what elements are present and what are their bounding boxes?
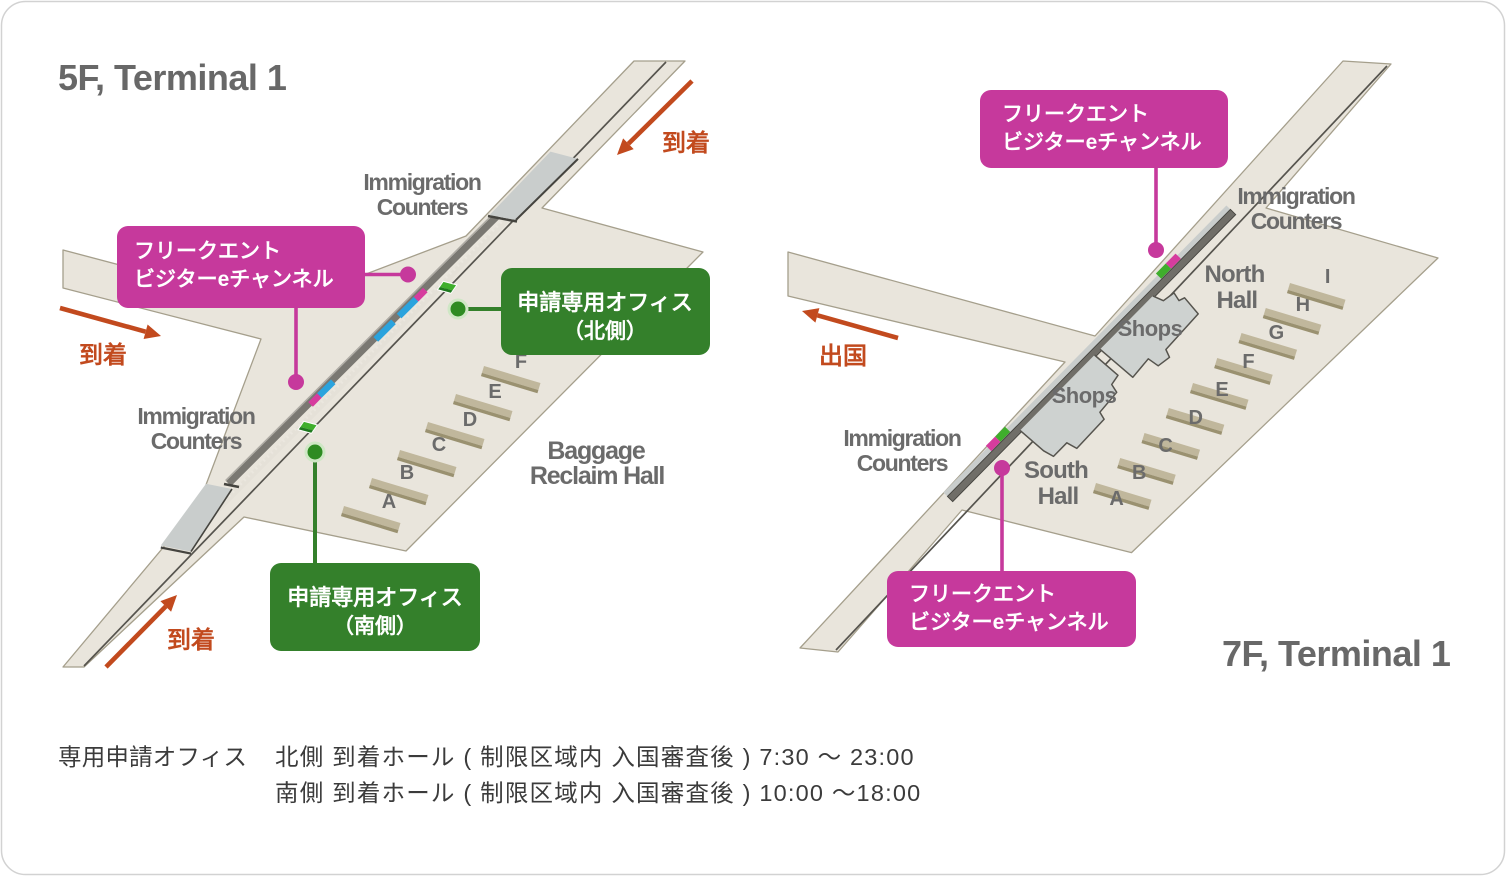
svg-text:Reclaim Hall: Reclaim Hall <box>530 462 665 490</box>
svg-text:Immigration: Immigration <box>363 169 481 195</box>
svg-text:到着: 到着 <box>167 626 215 654</box>
svg-text:到着: 到着 <box>662 129 710 157</box>
svg-text:北側 到着ホール ( 制限区域内 入国審査後 ) 7:30: 北側 到着ホール ( 制限区域内 入国審査後 ) 7:30 〜 23:00 <box>275 744 915 770</box>
svg-text:B: B <box>400 462 414 484</box>
svg-text:North: North <box>1205 261 1265 288</box>
svg-text:Immigration: Immigration <box>1237 183 1355 209</box>
svg-text:Shops: Shops <box>1052 383 1117 408</box>
svg-text:Immigration: Immigration <box>137 403 255 429</box>
svg-text:I: I <box>1325 266 1331 288</box>
svg-text:Counters: Counters <box>857 450 948 476</box>
svg-text:C: C <box>1158 435 1172 457</box>
svg-text:B: B <box>1132 462 1146 484</box>
svg-text:Shops: Shops <box>1118 316 1183 341</box>
svg-text:Baggage: Baggage <box>547 437 645 465</box>
svg-text:Counters: Counters <box>1251 208 1342 234</box>
svg-text:ビジターeチャンネル: ビジターeチャンネル <box>134 268 334 291</box>
svg-text:D: D <box>463 409 477 431</box>
svg-text:到着: 到着 <box>79 341 127 369</box>
svg-text:フリークエント: フリークエント <box>134 240 281 263</box>
svg-text:Hall: Hall <box>1038 483 1079 510</box>
svg-text:（北側）: （北側） <box>563 319 647 343</box>
svg-text:F: F <box>1242 351 1254 373</box>
svg-text:申請専用オフィス: 申請専用オフィス <box>287 585 463 610</box>
svg-text:南側 到着ホール ( 制限区域内 入国審査後 ) 10:00: 南側 到着ホール ( 制限区域内 入国審査後 ) 10:00 〜18:00 <box>275 780 921 806</box>
svg-text:South: South <box>1024 457 1088 484</box>
svg-text:ビジターeチャンネル: ビジターeチャンネル <box>1002 131 1202 154</box>
svg-text:D: D <box>1188 407 1202 429</box>
svg-text:フリークエント: フリークエント <box>1002 103 1149 126</box>
svg-text:出国: 出国 <box>819 343 867 370</box>
svg-text:A: A <box>1109 488 1123 510</box>
svg-text:E: E <box>488 381 501 403</box>
svg-text:E: E <box>1215 379 1228 401</box>
svg-text:Hall: Hall <box>1216 287 1257 314</box>
svg-text:専用申請オフィス: 専用申請オフィス <box>58 744 247 770</box>
svg-text:5F, Terminal 1: 5F, Terminal 1 <box>58 57 287 98</box>
svg-text:G: G <box>1269 322 1285 344</box>
svg-text:申請専用オフィス: 申請専用オフィス <box>517 290 693 315</box>
svg-text:Immigration: Immigration <box>843 425 961 451</box>
svg-text:フリークエント: フリークエント <box>909 583 1056 606</box>
svg-text:（南側）: （南側） <box>333 614 417 638</box>
svg-text:Counters: Counters <box>151 428 242 454</box>
svg-text:ビジターeチャンネル: ビジターeチャンネル <box>909 611 1109 634</box>
svg-text:Counters: Counters <box>377 194 468 220</box>
svg-text:7F, Terminal 1: 7F, Terminal 1 <box>1222 633 1451 674</box>
